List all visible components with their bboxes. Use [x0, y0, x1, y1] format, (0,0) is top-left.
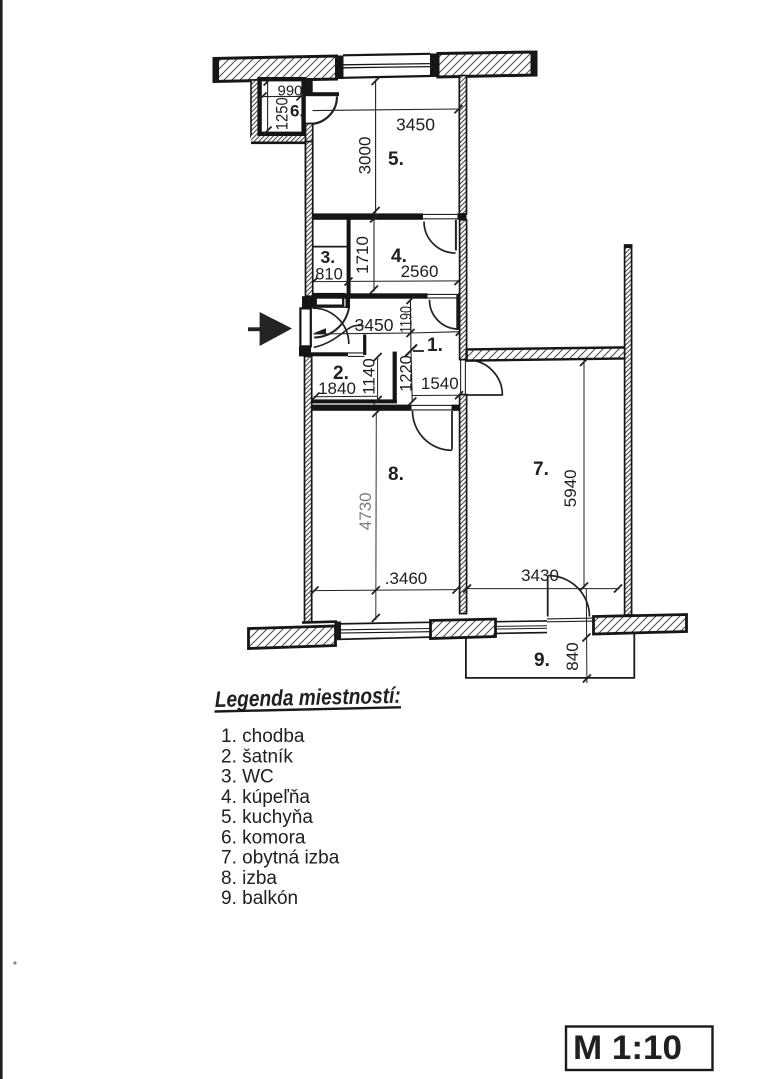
svg-text:2560: 2560: [401, 262, 439, 281]
svg-text:1220: 1220: [398, 355, 416, 392]
svg-text:1250: 1250: [274, 97, 292, 130]
svg-text:990: 990: [277, 83, 302, 100]
svg-text:3. WC: 3. WC: [221, 767, 274, 788]
svg-text:1.: 1.: [427, 335, 443, 356]
svg-text:840: 840: [563, 642, 582, 670]
svg-text:810: 810: [315, 266, 343, 284]
svg-text:7. obytná izba: 7. obytná izba: [221, 848, 340, 869]
svg-text:3.: 3.: [321, 247, 336, 267]
svg-text:.3460: .3460: [385, 569, 428, 588]
svg-text:9.: 9.: [534, 650, 550, 671]
svg-text:1. chodba: 1. chodba: [221, 726, 305, 747]
svg-text:3000: 3000: [356, 137, 375, 175]
svg-text:4. kúpeľňa: 4. kúpeľňa: [221, 787, 310, 808]
svg-text:5. kuchyňa: 5. kuchyňa: [221, 807, 313, 828]
svg-text:2. šatník: 2. šatník: [221, 746, 293, 767]
svg-text:8.: 8.: [388, 464, 404, 485]
svg-text:6.: 6.: [290, 101, 304, 120]
svg-text:5.: 5.: [388, 149, 404, 170]
svg-text:3450: 3450: [396, 115, 435, 135]
svg-text:1540: 1540: [421, 374, 459, 393]
svg-text:1140: 1140: [360, 358, 379, 395]
svg-text:1710: 1710: [353, 236, 372, 274]
svg-text:7.: 7.: [533, 459, 549, 480]
svg-text:8. izba: 8. izba: [221, 868, 277, 889]
svg-text:1840: 1840: [318, 379, 356, 398]
svg-text:1190: 1190: [397, 306, 415, 333]
svg-text:5940: 5940: [561, 469, 580, 507]
svg-text:M 1:10: M 1:10: [573, 1029, 682, 1067]
svg-text:6. komora: 6. komora: [221, 827, 306, 848]
svg-text:4730: 4730: [356, 492, 375, 530]
svg-text:9. balkón: 9. balkón: [221, 888, 298, 909]
